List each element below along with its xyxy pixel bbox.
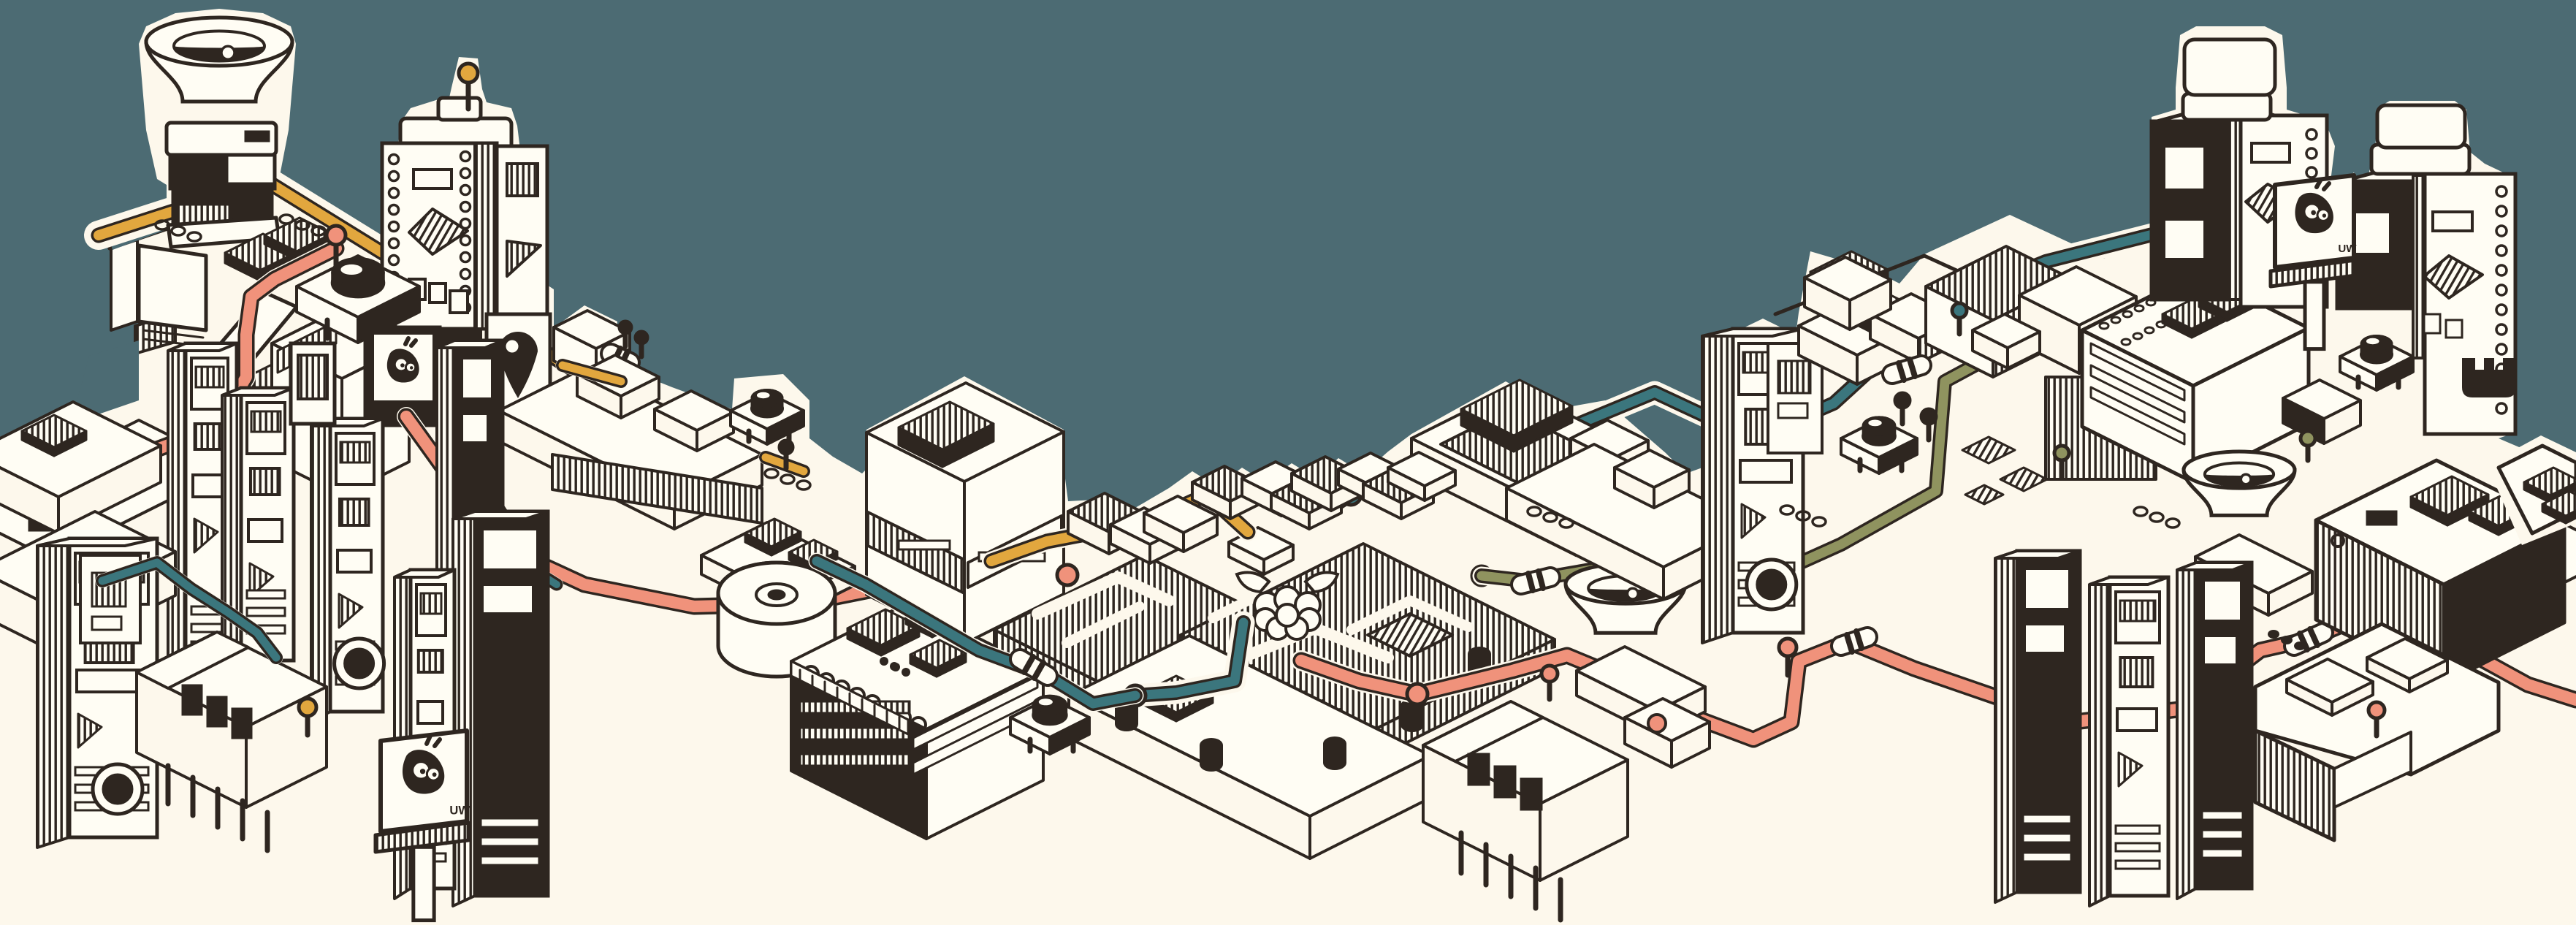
svg-text:UW: UW [449, 803, 470, 817]
svg-text:UW: UW [2338, 243, 2357, 255]
